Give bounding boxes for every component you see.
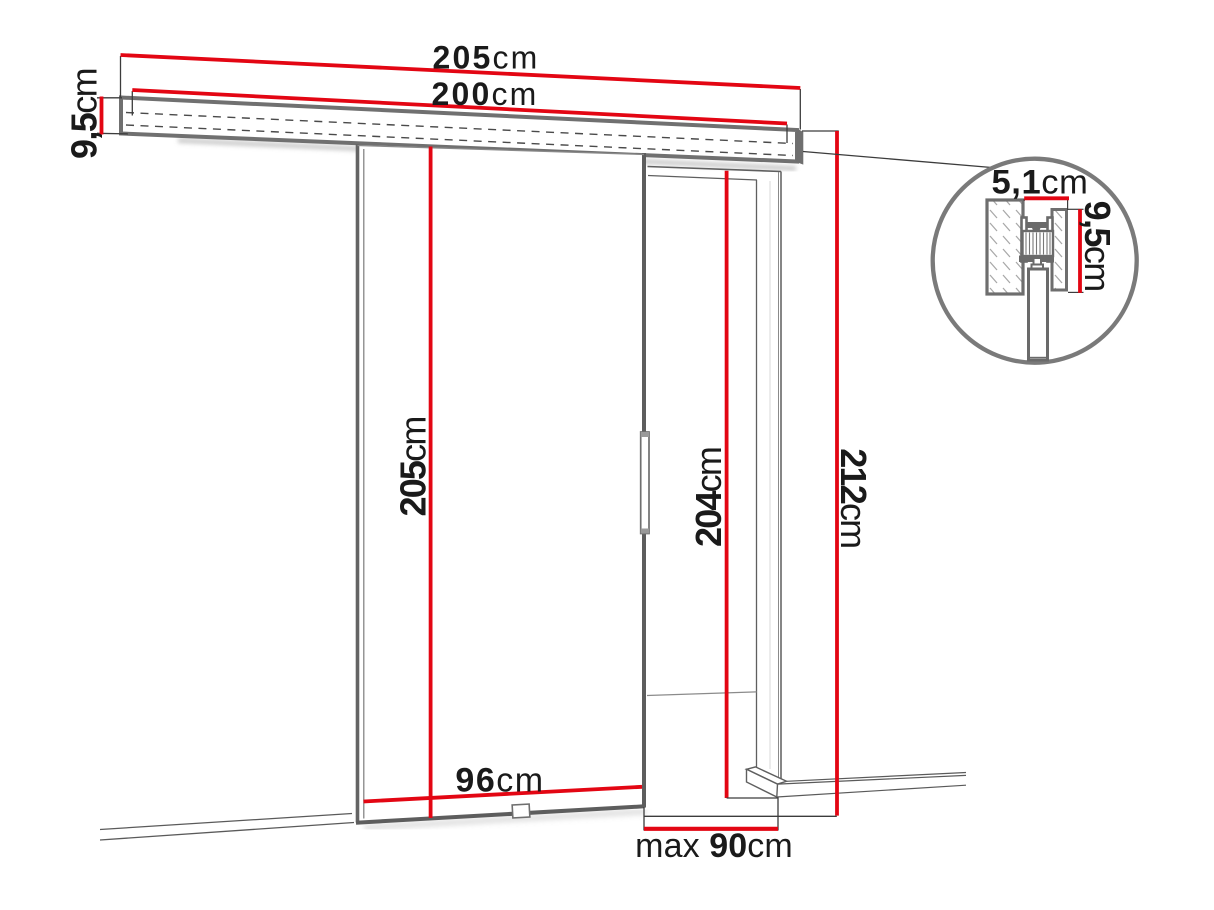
svg-text:96cm: 96cm: [455, 761, 544, 799]
svg-text:9,5cm: 9,5cm: [1077, 201, 1118, 291]
svg-text:9,5cm: 9,5cm: [64, 69, 105, 159]
svg-text:max 90cm: max 90cm: [635, 827, 793, 865]
svg-text:5,1cm: 5,1cm: [992, 164, 1089, 202]
svg-text:200cm: 200cm: [431, 76, 538, 112]
svg-text:204cm: 204cm: [688, 448, 729, 547]
svg-text:205cm: 205cm: [393, 417, 434, 516]
svg-text:205cm: 205cm: [432, 40, 539, 76]
svg-text:212cm: 212cm: [833, 448, 874, 547]
